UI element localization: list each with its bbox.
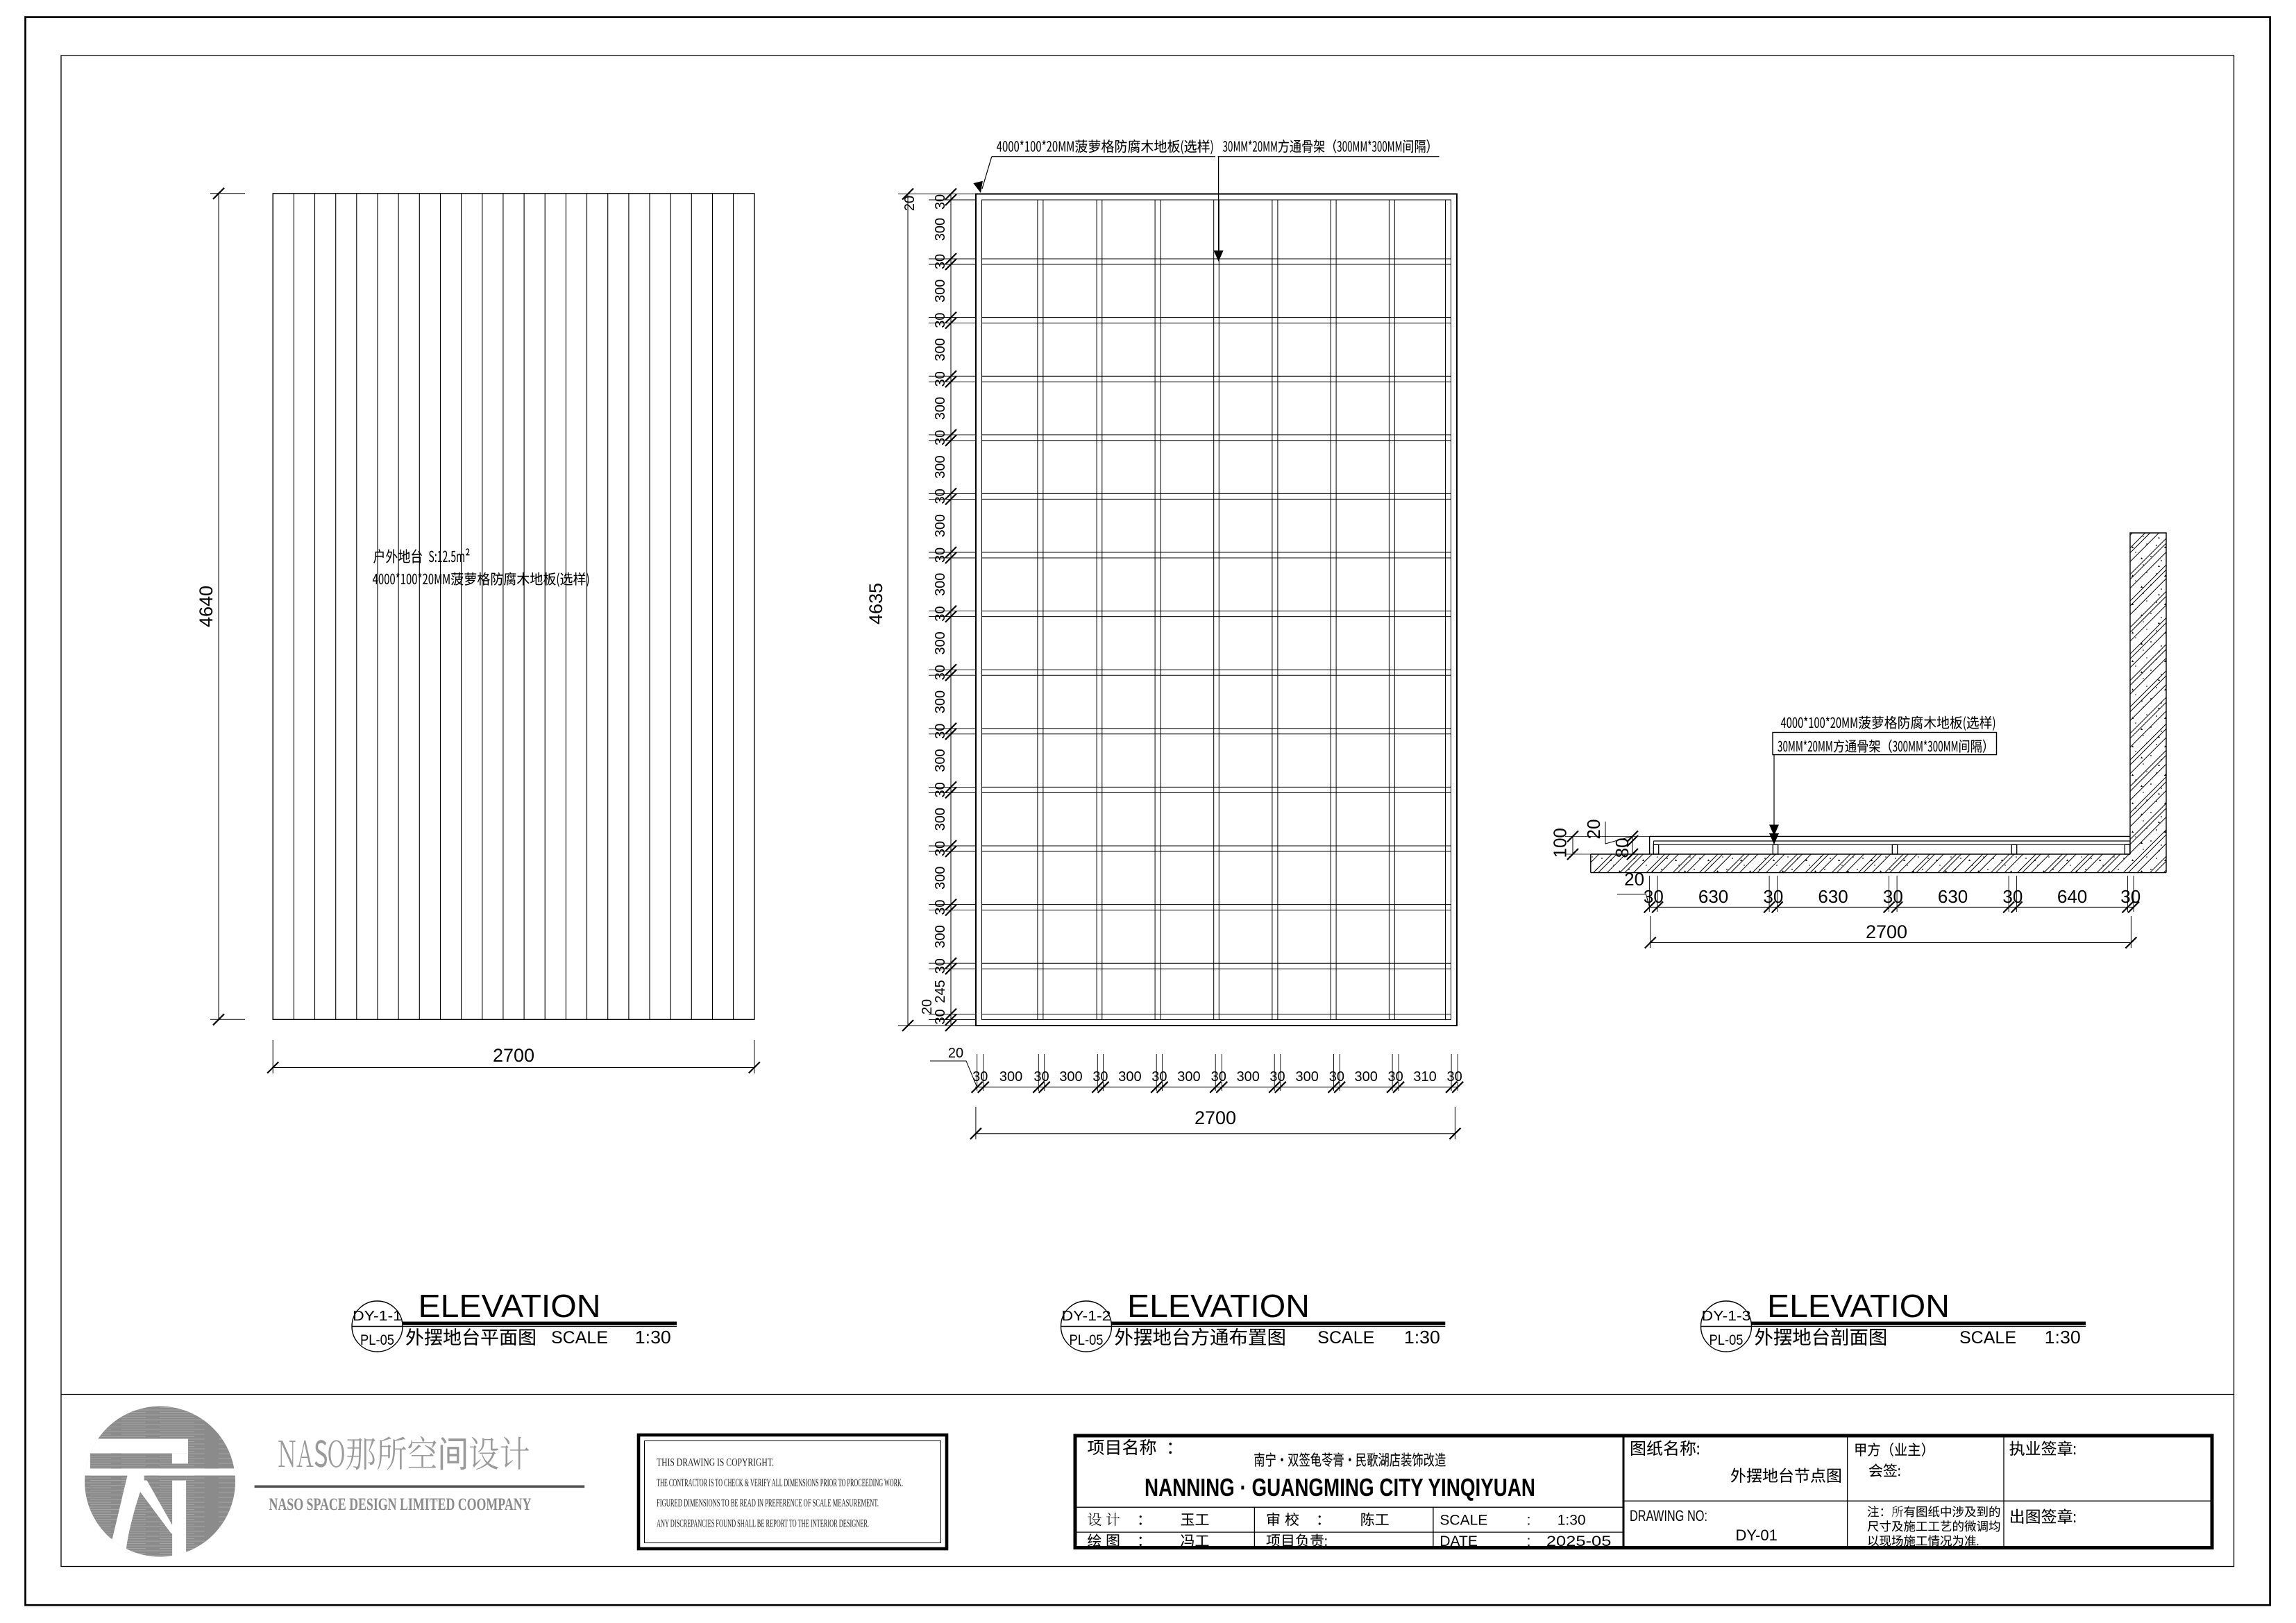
svg-text:245: 245 [933,980,948,1003]
svg-text:20: 20 [902,196,918,211]
svg-text:2700: 2700 [493,1045,534,1066]
svg-text:30: 30 [1329,1069,1344,1085]
svg-text:30: 30 [1269,1069,1285,1085]
svg-text:300: 300 [933,455,948,478]
svg-text:300: 300 [1354,1069,1377,1085]
svg-text:640: 640 [2057,886,2087,907]
svg-text:300: 300 [933,218,948,241]
svg-text:1:30: 1:30 [2045,1327,2081,1348]
svg-text:30: 30 [933,724,948,739]
svg-text:300: 300 [1295,1069,1318,1085]
svg-text:300: 300 [933,573,948,596]
svg-text:30: 30 [933,371,948,386]
svg-text:20: 20 [920,999,935,1014]
svg-text:30: 30 [1151,1069,1167,1085]
svg-text:FIGURED DIMENSIONS TO BE READ: FIGURED DIMENSIONS TO BE READ IN PREFERE… [657,1497,879,1509]
svg-text:300: 300 [933,808,948,831]
svg-text:300: 300 [1177,1069,1200,1085]
svg-text:DATE: DATE [1440,1533,1477,1549]
svg-text:300: 300 [933,280,948,303]
svg-text:DY-01: DY-01 [1736,1527,1778,1544]
svg-text:SCALE: SCALE [551,1328,608,1348]
svg-text:DY-1-1: DY-1-1 [353,1309,402,1324]
svg-text:2700: 2700 [1195,1107,1236,1128]
svg-text:SCALE: SCALE [1317,1328,1374,1348]
svg-text::: : [1527,1513,1531,1529]
svg-text:300: 300 [933,925,948,948]
svg-text:300: 300 [999,1069,1022,1085]
svg-text:PL-05: PL-05 [360,1332,394,1348]
svg-text:30: 30 [933,430,948,445]
svg-text:ELEVATION: ELEVATION [419,1288,601,1324]
svg-text:30: 30 [933,547,948,563]
svg-text:ELEVATION: ELEVATION [1127,1288,1310,1324]
svg-text:300: 300 [933,690,948,713]
svg-text:30: 30 [933,488,948,504]
svg-text:DY-1-2: DY-1-2 [1062,1309,1111,1324]
svg-text:ANY DISCREPANCIES FOUND SHALL: ANY DISCREPANCIES FOUND SHALL BE REPORT … [657,1518,869,1530]
svg-text:30: 30 [933,782,948,797]
svg-text:30: 30 [1447,1069,1462,1085]
svg-text:SCALE: SCALE [1440,1513,1487,1529]
svg-text:30: 30 [933,899,948,915]
svg-text:30: 30 [2120,886,2141,907]
svg-text:30: 30 [933,841,948,856]
svg-text:2700: 2700 [1866,921,1907,942]
svg-text:300: 300 [1059,1069,1082,1085]
svg-text:300: 300 [933,514,948,537]
svg-text:30: 30 [933,958,948,974]
svg-text:300: 300 [933,397,948,420]
svg-text:310: 310 [1413,1069,1436,1085]
svg-text:THIS DRAWING IS COPYRIGHT.: THIS DRAWING IS COPYRIGHT. [657,1456,774,1468]
svg-text:30: 30 [933,606,948,621]
svg-text:SCALE: SCALE [1959,1328,2016,1348]
svg-text:ELEVATION: ELEVATION [1767,1288,1950,1324]
svg-text:NANNING · GUANGMING CITY YINQI: NANNING · GUANGMING CITY YINQIYUAN [1145,1473,1535,1502]
svg-text:300: 300 [1237,1069,1260,1085]
svg-text:30: 30 [933,254,948,269]
svg-text:100: 100 [1549,828,1570,858]
svg-text:630: 630 [1818,886,1848,907]
svg-text:20: 20 [1583,819,1604,840]
svg-text:30: 30 [1211,1069,1226,1085]
svg-text:630: 630 [1698,886,1728,907]
svg-text:300: 300 [1118,1069,1141,1085]
svg-text:30: 30 [1763,886,1783,907]
svg-text:80: 80 [1612,838,1632,858]
svg-text:THE CONTRACTOR IS TO CHECK & V: THE CONTRACTOR IS TO CHECK & VERIFY ALL … [657,1477,903,1489]
svg-text:4635: 4635 [866,583,886,624]
svg-text:30: 30 [1387,1069,1403,1085]
svg-text:PL-05: PL-05 [1710,1332,1744,1348]
svg-text:20: 20 [1624,869,1644,890]
svg-text:4640: 4640 [196,586,217,627]
svg-text:DRAWING NO:: DRAWING NO: [1630,1507,1707,1524]
svg-text:300: 300 [933,867,948,890]
svg-text:PL-05: PL-05 [1070,1332,1104,1348]
svg-text:20: 20 [948,1046,963,1061]
svg-text:30: 30 [933,194,948,210]
svg-text:630: 630 [1938,886,1968,907]
svg-text:300: 300 [933,749,948,772]
svg-text::: : [1527,1533,1531,1549]
svg-text:30: 30 [933,1009,948,1024]
svg-text:30: 30 [2002,886,2023,907]
svg-text:1:30: 1:30 [1404,1327,1440,1348]
svg-text:1:30: 1:30 [635,1327,671,1348]
svg-text:30: 30 [1092,1069,1108,1085]
svg-text:30: 30 [933,665,948,680]
svg-text:2025-05: 2025-05 [1546,1533,1612,1549]
svg-text:30: 30 [933,312,948,328]
svg-text:30: 30 [1883,886,1903,907]
svg-text:300: 300 [933,338,948,361]
svg-text:1:30: 1:30 [1558,1513,1586,1529]
svg-text:DY-1-3: DY-1-3 [1702,1309,1751,1324]
svg-text:30: 30 [1033,1069,1049,1085]
svg-text:NASO SPACE DESIGN LIMITED COOM: NASO SPACE DESIGN LIMITED COOMPANY [269,1494,532,1514]
svg-text:300: 300 [933,631,948,654]
